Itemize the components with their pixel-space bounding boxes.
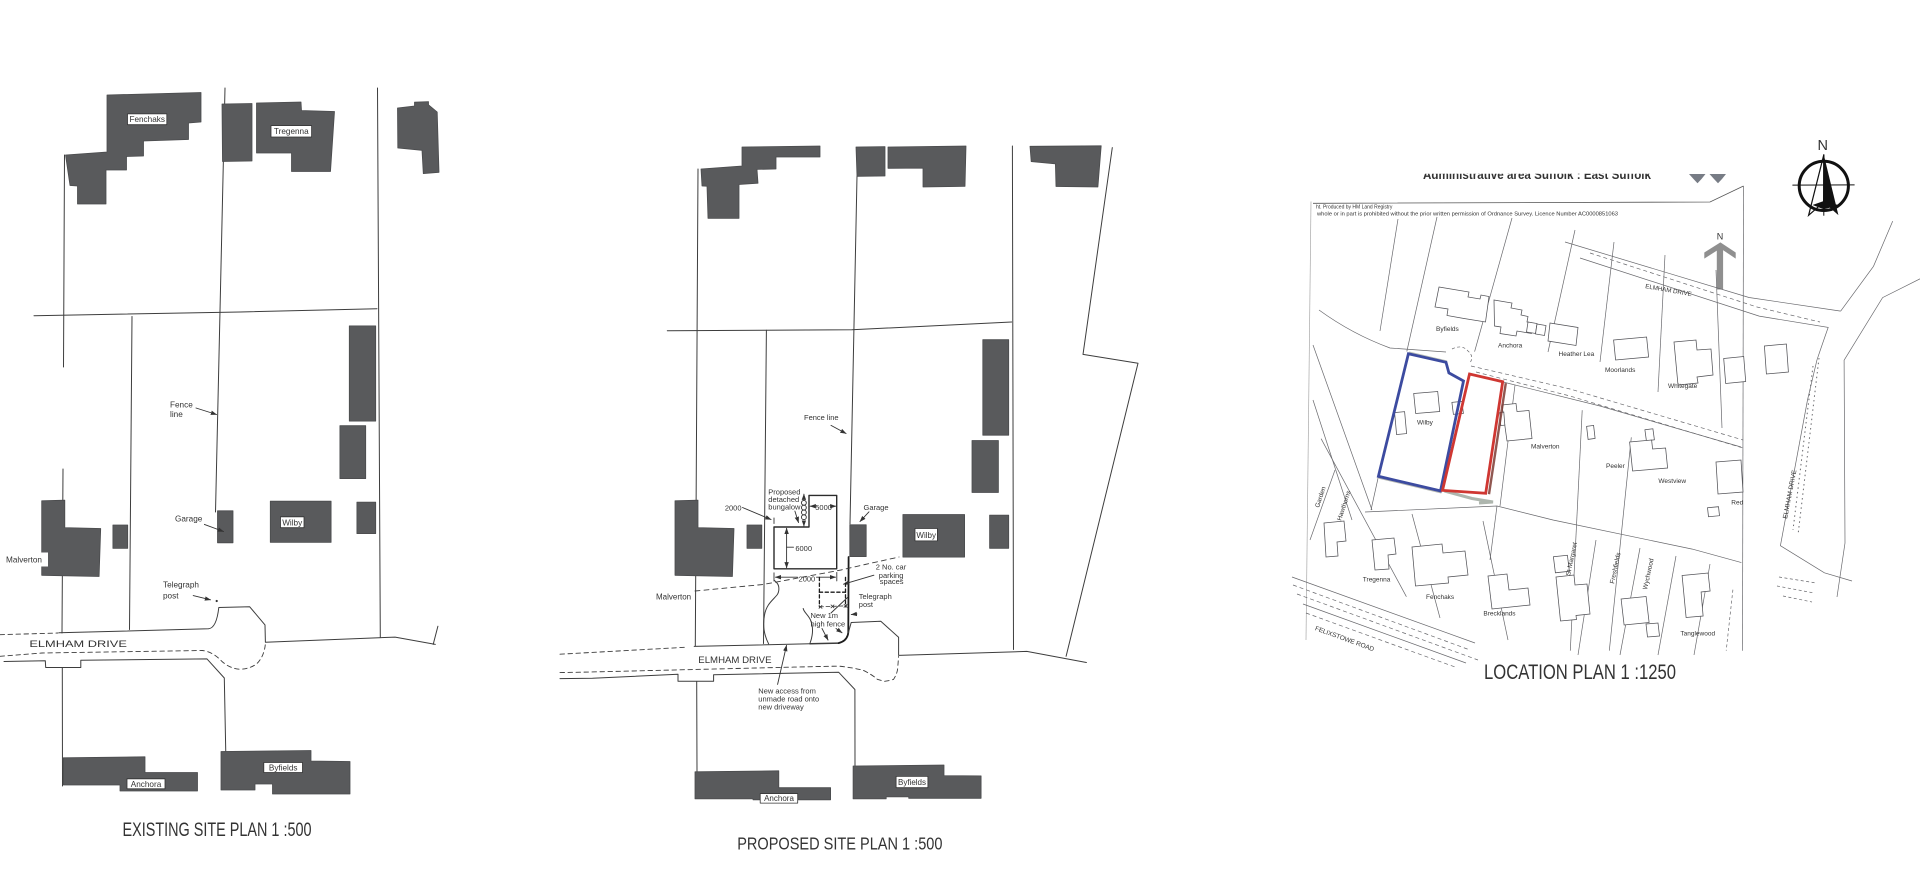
svg-text:Wychwood: Wychwood [1642, 558, 1656, 591]
svg-text:Hawthorns: Hawthorns [1336, 489, 1352, 521]
svg-text:Whitegate: Whitegate [1668, 383, 1698, 390]
svg-text:Fence: Fence [170, 401, 193, 410]
svg-text:Fenchaks: Fenchaks [129, 115, 165, 124]
svg-text:spaces: spaces [880, 577, 904, 586]
svg-text:Wilby: Wilby [282, 518, 303, 527]
svg-text:2000: 2000 [725, 503, 742, 512]
svg-text:N: N [1818, 138, 1828, 154]
svg-text:Byfields: Byfields [898, 778, 926, 787]
svg-text:Garage: Garage [175, 515, 203, 524]
svg-text:ELMHAM DRIVE: ELMHAM DRIVE [698, 655, 771, 665]
svg-text:Malverton: Malverton [1531, 443, 1560, 450]
svg-text:Telegraph: Telegraph [163, 581, 199, 590]
svg-text:Heather Lea: Heather Lea [1559, 351, 1595, 358]
svg-text:new driveway: new driveway [758, 703, 804, 712]
svg-text:Peeler: Peeler [1606, 463, 1626, 470]
svg-text:post: post [859, 600, 874, 609]
svg-text:FELIXSTOWE ROAD: FELIXSTOWE ROAD [1314, 625, 1375, 653]
svg-text:high fence: high fence [811, 619, 846, 628]
svg-text:6000: 6000 [795, 544, 812, 553]
svg-text:Brecklands: Brecklands [1483, 611, 1516, 618]
svg-text:Freshfields: Freshfields [1609, 551, 1623, 584]
svg-text:Wilby: Wilby [1417, 420, 1434, 427]
svg-text:2000: 2000 [799, 574, 816, 583]
svg-text:Tregenna: Tregenna [1363, 576, 1391, 583]
svg-text:N: N [1717, 232, 1724, 242]
svg-text:PROPOSED SITE PLAN 1 :500: PROPOSED SITE PLAN 1 :500 [737, 834, 943, 854]
svg-text:ELMHAM DRIVE: ELMHAM DRIVE [29, 639, 127, 649]
svg-text:Byfields: Byfields [1436, 326, 1460, 333]
svg-text:5000: 5000 [815, 503, 832, 512]
svg-text:line: line [170, 410, 183, 419]
svg-text:ELMHAM DRIVE: ELMHAM DRIVE [1645, 283, 1693, 298]
svg-text:Fence line: Fence line [804, 413, 839, 422]
svg-text:ELMHAM DRIVE: ELMHAM DRIVE [1782, 469, 1798, 520]
svg-text:ht. Produced by HM Land Regis: ht. Produced by HM Land Registry [1316, 205, 1393, 211]
svg-text:Moorlands: Moorlands [1605, 367, 1636, 374]
svg-text:post: post [163, 592, 179, 601]
svg-text:Tregenna: Tregenna [274, 127, 309, 136]
svg-text:Fenchaks: Fenchaks [1426, 594, 1455, 601]
svg-text:Anchora: Anchora [764, 794, 794, 803]
svg-text:Anchora: Anchora [131, 780, 162, 789]
svg-text:Westview: Westview [1658, 478, 1686, 485]
svg-text:bungalow: bungalow [768, 502, 801, 511]
svg-text:LOCATION PLAN 1 :1250: LOCATION PLAN 1 :1250 [1484, 661, 1676, 684]
svg-text:Wilby: Wilby [916, 531, 936, 540]
svg-text:Anchora: Anchora [1498, 343, 1523, 350]
svg-text:Red: Red [1731, 499, 1743, 506]
svg-text:Administrative area Suffolk :: Administrative area Suffolk : East Suffo… [1423, 168, 1651, 182]
svg-text:Malverton: Malverton [656, 592, 691, 601]
svg-text:Byfields: Byfields [269, 764, 298, 773]
svg-text:Garage: Garage [864, 503, 889, 512]
svg-text:whole or in part is prohibited: whole or in part is prohibited without t… [1317, 211, 1618, 217]
svg-text:EXISTING SITE PLAN 1 :500: EXISTING SITE PLAN 1 :500 [123, 820, 312, 841]
svg-text:Tanglewood: Tanglewood [1680, 630, 1715, 637]
svg-text:Malverton: Malverton [6, 556, 42, 565]
